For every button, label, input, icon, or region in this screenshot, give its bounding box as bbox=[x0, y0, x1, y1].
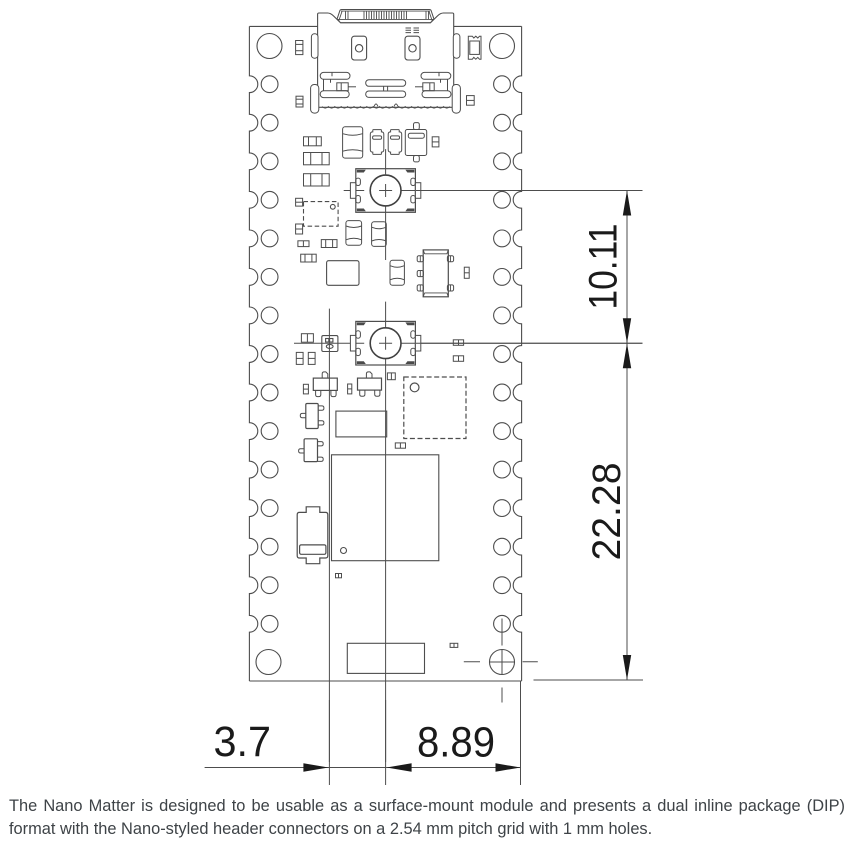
svg-text:8.89: 8.89 bbox=[417, 718, 495, 766]
svg-text:3.7: 3.7 bbox=[214, 718, 272, 766]
svg-text:10.11: 10.11 bbox=[582, 224, 626, 310]
svg-text:22.28: 22.28 bbox=[585, 463, 629, 561]
